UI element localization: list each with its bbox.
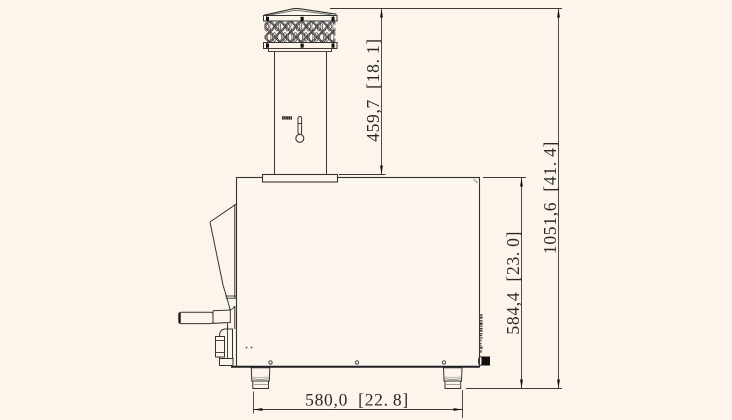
- svg-text:1051,6 [41. 4]: 1051,6 [41. 4]: [540, 141, 560, 254]
- svg-text:459,7 [18. 1]: 459,7 [18. 1]: [363, 38, 383, 142]
- svg-text:584,4 [23. 0]: 584,4 [23. 0]: [503, 231, 523, 335]
- svg-text:580,0 [22. 8]: 580,0 [22. 8]: [305, 389, 409, 409]
